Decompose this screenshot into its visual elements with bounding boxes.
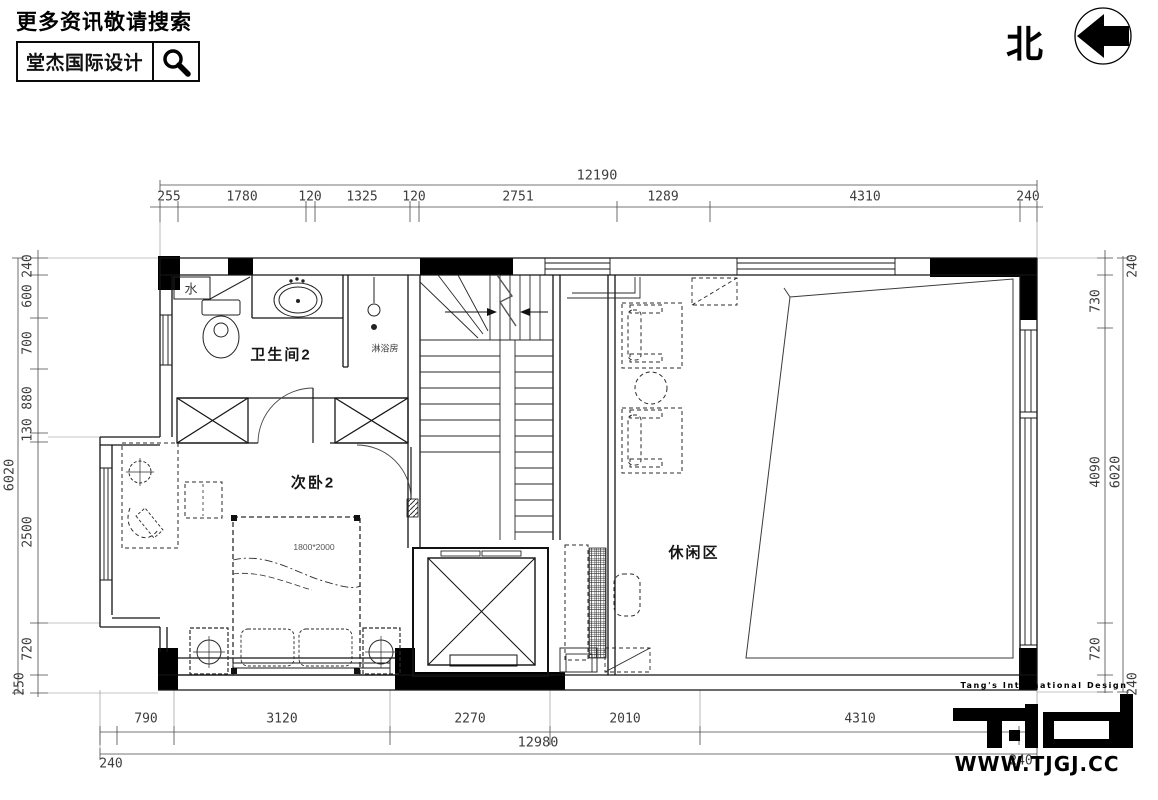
armchair: [622, 408, 682, 473]
staircase: [420, 275, 553, 540]
dim-bottom-left-240: 240: [99, 758, 122, 771]
dim-left-seg: 720: [22, 637, 35, 660]
pillow: [299, 629, 352, 666]
door-jamb-hatched: [407, 499, 418, 517]
shower-label: 淋浴房: [371, 342, 398, 355]
dim-top-total: 12190: [577, 169, 618, 183]
console-desk: [565, 545, 588, 660]
dim-top-seg: 2751: [502, 191, 533, 204]
brand-website: WWW.TJGJ.CC: [928, 752, 1146, 776]
cabinet-x-boxes: [177, 398, 408, 443]
room-label-bedroom: 次卧2: [291, 472, 335, 493]
dim-left-seg: 250: [14, 672, 27, 695]
dim-top-seg: 120: [298, 191, 321, 204]
dim-left-seg: 880: [22, 386, 35, 409]
dim-bottom-seg: 3120: [266, 713, 297, 726]
toilet-tank: [202, 300, 240, 315]
dim-right-seg: 4090: [1090, 456, 1103, 487]
north-label: 北: [1006, 14, 1043, 68]
dim-right-seg: 240: [1127, 254, 1140, 277]
dim-right-seg: 730: [1090, 289, 1103, 312]
dim-left-seg: 700: [22, 331, 35, 354]
brand-search-box: 堂杰国际设计: [16, 41, 200, 82]
bed-size-label: 1800*2000: [293, 542, 334, 552]
dim-left-seg: 240: [22, 254, 35, 277]
chair: [614, 574, 640, 616]
desk: [122, 443, 178, 548]
dim-bottom-seg: 4310: [844, 713, 875, 726]
bed: [233, 517, 360, 675]
dim-top-seg: 4310: [849, 191, 880, 204]
hatched-unit: [589, 548, 606, 658]
room-label-leisure: 休闲区: [668, 542, 719, 563]
walls: [100, 258, 1037, 690]
dim-right-total: 6020: [1109, 456, 1123, 489]
room-label-bathroom: 卫生间2: [250, 344, 311, 365]
leisure-furniture: [560, 277, 737, 672]
dim-top-seg: 1780: [226, 191, 257, 204]
round-table: [635, 372, 667, 404]
dim-right-seg: 720: [1090, 637, 1103, 660]
dim-left-seg: 2500: [22, 516, 35, 547]
search-icon: [154, 43, 198, 80]
blanket-fold: [233, 558, 360, 587]
dim-bottom-seg: 2270: [454, 713, 485, 726]
water-meter-label: 水: [184, 279, 197, 298]
extension-lines: [48, 222, 1097, 748]
search-banner: 更多资讯敬请搜索 堂杰国际设计: [16, 6, 200, 82]
dim-top-seg: 1289: [647, 191, 678, 204]
dim-bottom-total: 12980: [518, 736, 559, 750]
bedroom-furniture: [122, 443, 400, 675]
north-arrow-icon: [1075, 8, 1131, 64]
dim-top-seg: 240: [1016, 191, 1039, 204]
windows: [100, 258, 1037, 675]
floorplan-sheet: 更多资讯敬请搜索 堂杰国际设计 北 卫生间2 次卧2 休闲区 水 淋浴房 180…: [0, 0, 1158, 800]
brand-tagline: Tang's International Design: [953, 681, 1135, 690]
dim-left-total: 6020: [3, 459, 17, 492]
search-prompt-text: 更多资讯敬请搜索: [16, 6, 200, 36]
dim-bottom-seg: 790: [134, 713, 157, 726]
brand-name: 堂杰国际设计: [18, 43, 154, 80]
dim-top-seg: 1325: [346, 191, 377, 204]
dim-left-seg: 130: [22, 418, 35, 441]
dim-left-seg: 600: [22, 284, 35, 307]
pillow: [241, 629, 294, 666]
dim-top-seg: 255: [157, 191, 180, 204]
low-cabinet: [567, 277, 640, 298]
armchair: [622, 303, 682, 368]
floorplan-drawing: [0, 0, 1158, 800]
tjd-logo-mark: [953, 694, 1133, 748]
dim-top-seg: 120: [402, 191, 425, 204]
desk-chair: [128, 508, 158, 538]
elevator-shaft: [413, 548, 548, 676]
void-outline: [746, 279, 1013, 658]
dim-bottom-seg: 2010: [609, 713, 640, 726]
side-table: [185, 482, 222, 518]
